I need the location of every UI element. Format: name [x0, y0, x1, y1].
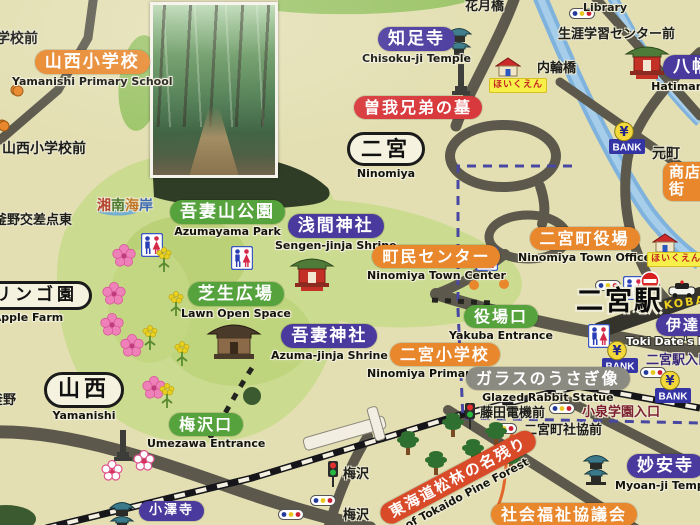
- plum-blossom-icon: [101, 460, 123, 482]
- hoikuen-2: ほいくえん: [647, 252, 700, 267]
- ninomiya-shakyo-mae-text: 二宮町社協前: [524, 419, 602, 438]
- kamano-crossing-east: 釜野交差点東: [0, 209, 72, 228]
- signal-icon: [326, 460, 340, 487]
- ninomiya-district-text: 二宮: [347, 132, 425, 166]
- myoan-ji-temple-text: 妙安寺: [627, 454, 700, 478]
- yamanishi-district-en-text: Yamanishi: [53, 409, 116, 422]
- lifelong-learning-center-mae: 生涯学習センター前: [558, 23, 675, 42]
- hachimangu: 八幡宮Hatiman-gu: [663, 55, 700, 93]
- yamanishi-primary-school-mae-text: 山西小学校前: [2, 138, 86, 158]
- yamanishi-primary-school-text: 山西小学校: [35, 50, 150, 74]
- kamano-text: 釜野: [0, 389, 16, 408]
- shrine-building-icon: [206, 316, 262, 362]
- lifelong-learning-center-mae-text: 生涯学習センター前: [558, 23, 675, 42]
- date-tokei: 伊達時計: [656, 314, 700, 336]
- hoikuen-1-text: ほいくえん: [489, 78, 547, 93]
- kagetsu-bridge-text: 花月橋: [465, 0, 504, 14]
- date-tokei-text: 伊達時計: [656, 314, 700, 336]
- azumayama-park: 吾妻山公園Azumayama Park: [170, 200, 285, 238]
- kamano-crossing-east-text: 釜野交差点東: [0, 209, 72, 228]
- umezawa-entrance: 梅沢口Umezawa Entrance: [147, 413, 265, 450]
- ninomiya-station: 二宮駅: [576, 288, 663, 315]
- yamanishi-primary-school-mae: 山西小学校前: [2, 138, 86, 158]
- shonan-coast-view: 湘南海岸: [97, 195, 153, 215]
- ninomiya-station-entrance-text: 二宮駅入口: [646, 349, 700, 368]
- azuma-jinja-shrine-text: 吾妻神社: [281, 324, 377, 348]
- myoan-ji-temple-en-text: Myoan-ji Temple: [615, 479, 700, 492]
- shotengai-text: 商店街: [663, 162, 700, 201]
- svg-text:BANK: BANK: [613, 143, 643, 154]
- ninomiya-town-office-text: 二宮町役場: [530, 227, 640, 250]
- social-welfare-council: 社会福祉協議会: [491, 503, 637, 525]
- umezawa-signal-text: 梅沢: [343, 463, 369, 482]
- myoan-ji-temple: 妙安寺Myoan-ji Temple: [615, 454, 700, 492]
- lawn-open-space-en-text: Lawn Open Space: [181, 307, 291, 320]
- lawn-open-space-text: 芝生広場: [188, 282, 284, 306]
- svg-text:¥: ¥: [612, 344, 621, 359]
- soga-brothers-grave: 曽我兄弟の墓: [354, 96, 482, 119]
- shonan-coast-view-text: 湘南海岸: [97, 195, 153, 215]
- signal-icon: [463, 402, 477, 429]
- sengen-jinja-shrine-text: 浅間神社: [288, 214, 384, 238]
- ozawa-ji-temple-text: 小澤寺: [139, 501, 204, 521]
- soga-brothers-grave-text: 曽我兄弟の墓: [354, 96, 482, 119]
- bus-stop-icon: [278, 509, 304, 520]
- temple-icon: [106, 496, 138, 525]
- azumayama-park-en-text: Azumayama Park: [174, 225, 281, 238]
- shrine-icon: [289, 252, 335, 294]
- hoikuen-2-text: ほいくえん: [647, 252, 700, 267]
- gakko-mae: 学校前: [0, 28, 38, 48]
- svg-text:BANK: BANK: [659, 392, 689, 403]
- hachimangu-en-text: Hatiman-gu: [651, 80, 700, 93]
- rapeseed-flower-icon: [140, 324, 160, 352]
- nursery-school-icon: [495, 57, 521, 77]
- yakuba-entrance: 役場口Yakuba Entrance: [449, 305, 553, 342]
- rapeseed-flower-icon: [157, 382, 177, 410]
- library: Library: [583, 1, 627, 14]
- rapeseed-flower-icon: [154, 246, 174, 274]
- azumayama-park-text: 吾妻山公園: [170, 200, 285, 224]
- pine-tree-icon: [396, 428, 420, 456]
- bus-stop-icon: [310, 495, 336, 506]
- umezawa-busstop: 梅沢: [343, 504, 369, 523]
- ninomiya-town-center-en-text: Ninomiya Town Center: [367, 269, 506, 282]
- ninomiya-town-center: 町民センターNinomiya Town Center: [367, 245, 506, 282]
- yamanishi-primary-school-en-text: Yamanishi Primary School: [12, 75, 173, 88]
- chisoku-ji-temple-en-text: Chisoku-ji Temple: [362, 52, 471, 65]
- restroom-icon: [231, 246, 253, 270]
- bank-icon: BANK¥: [654, 371, 692, 405]
- bank-icon: BANK¥: [608, 122, 646, 156]
- monument-icon: [112, 428, 134, 462]
- nursery-school-icon: [652, 233, 678, 253]
- ninomiya-town-office: 二宮町役場Ninomiya Town Office: [518, 227, 651, 264]
- yamanishi-primary-school: 山西小学校Yamanishi Primary School: [12, 50, 173, 88]
- umezawa-signal: 梅沢: [343, 463, 369, 482]
- forest-path-photo-image: [153, 5, 275, 175]
- hoikuen-1: ほいくえん: [489, 78, 547, 93]
- umezawa-busstop-text: 梅沢: [343, 504, 369, 523]
- umezawa-entrance-en-text: Umezawa Entrance: [147, 437, 265, 450]
- toki-date-en: Toki Date's Mo: [626, 335, 700, 348]
- yakuba-entrance-en-text: Yakuba Entrance: [449, 329, 553, 342]
- glazed-rabbit-statue: ガラスのうさぎ像Glazed Rabbit Statue: [466, 367, 630, 404]
- koizumi-gakuen-entrance-text: 小泉学園入口: [582, 401, 660, 420]
- motomachi: 元町: [652, 143, 680, 163]
- toki-date-en-text: Toki Date's Mo: [626, 335, 700, 348]
- bus-stop-dot-icon: [0, 120, 10, 132]
- ozawa-ji-temple: 小澤寺: [139, 501, 204, 521]
- kamano: 釜野: [0, 389, 16, 408]
- ninomiya-primary-school-text: 二宮小学校: [390, 343, 500, 366]
- social-welfare-council-text: 社会福祉協議会: [491, 503, 637, 525]
- area-guide-map: 学校前山西小学校Yamanishi Primary School山西小学校前知足…: [0, 0, 700, 525]
- ninomiya-district-en-text: Ninomiya: [357, 167, 415, 180]
- plum-blossom-icon: [133, 450, 155, 472]
- shotengai: 商店街: [663, 162, 700, 201]
- umezawa-entrance-text: 梅沢口: [169, 413, 243, 436]
- library-text: Library: [583, 1, 627, 14]
- apple-farm-en-text: Apple Farm: [0, 311, 63, 324]
- svg-text:¥: ¥: [665, 374, 674, 389]
- yamanishi-district: 山西Yamanishi: [44, 372, 124, 422]
- svg-text:¥: ¥: [619, 125, 628, 140]
- koizumi-gakuen-entrance: 小泉学園入口: [582, 401, 660, 420]
- uchiwa-bridge-text: 内輪橋: [537, 57, 576, 76]
- cherry-blossom-icon: [102, 282, 126, 306]
- lawn-open-space: 芝生広場Lawn Open Space: [181, 282, 291, 320]
- grave-monument-icon: [450, 62, 472, 96]
- pine-tree-icon: [441, 410, 465, 438]
- hachimangu-text: 八幡宮: [663, 55, 700, 79]
- ninomiya-town-office-en-text: Ninomiya Town Office: [518, 251, 651, 264]
- ninomiya-district: 二宮Ninomiya: [347, 132, 425, 180]
- ninomiya-shakyo-mae: 二宮町社協前: [524, 419, 602, 438]
- yakuba-entrance-text: 役場口: [464, 305, 538, 328]
- glazed-rabbit-statue-text: ガラスのうさぎ像: [466, 367, 630, 390]
- chisoku-ji-temple-text: 知足寺: [378, 27, 455, 51]
- apple-farm: リンゴ園Apple Farm: [0, 281, 92, 324]
- ninomiya-town-center-text: 町民センター: [372, 245, 500, 268]
- rapeseed-flower-icon: [172, 340, 192, 368]
- forest-path-photo: [150, 2, 278, 178]
- chisoku-ji-temple: 知足寺Chisoku-ji Temple: [362, 27, 471, 65]
- kagetsu-bridge: 花月橋: [465, 0, 504, 14]
- apple-farm-text: リンゴ園: [0, 281, 92, 310]
- cherry-blossom-icon: [112, 244, 136, 268]
- yamanishi-district-text: 山西: [44, 372, 124, 408]
- ninomiya-station-entrance: 二宮駅入口: [646, 349, 700, 368]
- uchiwa-bridge: 内輪橋: [537, 57, 576, 76]
- motomachi-text: 元町: [652, 143, 680, 163]
- gakko-mae-text: 学校前: [0, 28, 38, 48]
- temple-icon: [580, 449, 612, 485]
- bus-stop-icon: [549, 403, 575, 414]
- ninomiya-station-text: 二宮駅: [576, 288, 663, 315]
